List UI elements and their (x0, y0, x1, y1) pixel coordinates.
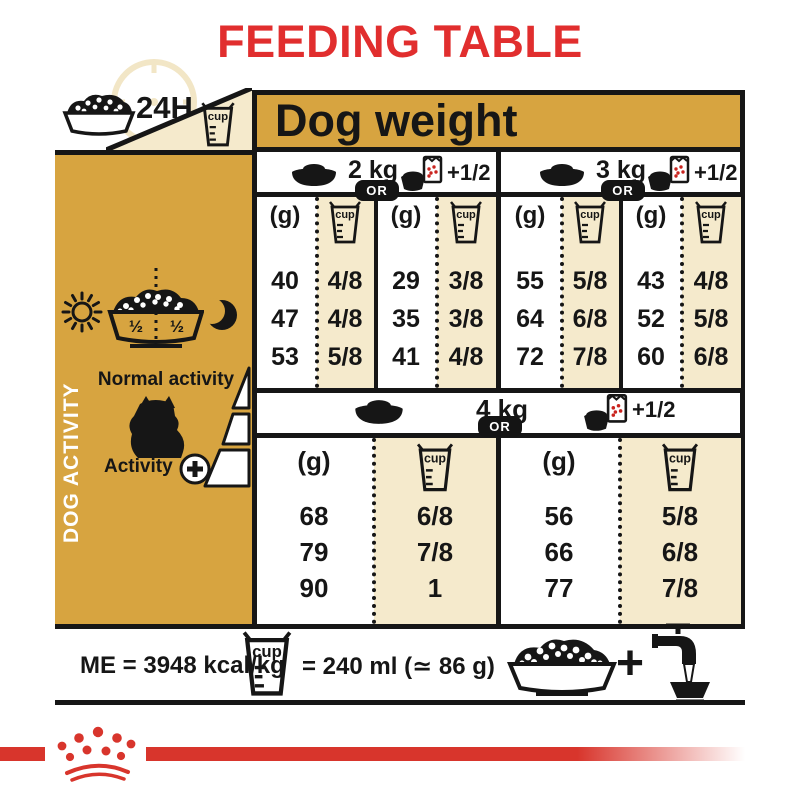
svg-text:½: ½ (170, 317, 184, 336)
table-cell: 4/8 (313, 267, 377, 296)
brand-bar-left (0, 747, 45, 761)
table-cell: 60 (619, 343, 683, 372)
dotted-divider (372, 438, 376, 624)
table-cell: 53 (253, 343, 317, 372)
weight-block-divider (496, 438, 501, 624)
grams-unit-label: (g) (253, 202, 317, 230)
or-badge: OR (601, 180, 645, 201)
sun-icon (58, 288, 106, 336)
moon-icon (204, 294, 240, 336)
svg-text:cup: cup (335, 209, 355, 221)
kibble-bowl-icon (502, 626, 622, 700)
brand-bar-right (146, 747, 745, 761)
measuring-cup-icon: cup (573, 199, 607, 245)
grams-unit-label: (g) (276, 446, 352, 477)
table-cell: 1 (397, 573, 473, 604)
pouch-and-bowl-icon (582, 392, 630, 432)
svg-text:cup: cup (701, 209, 721, 221)
table-cell: 7/8 (397, 537, 473, 568)
measuring-cup-icon: cup (194, 100, 242, 148)
svg-text:cup: cup (252, 642, 282, 661)
header-row-underline (252, 192, 745, 197)
dish-icon (538, 162, 586, 188)
grams-unit-label: (g) (521, 446, 597, 477)
plus-half-label: +1/2 (694, 160, 737, 186)
table-cell: 3/8 (434, 267, 498, 296)
table-cell: 56 (521, 501, 597, 532)
table-cell: 4/8 (679, 267, 743, 296)
measuring-cup-icon: cup (660, 441, 700, 493)
table-cell: 6/8 (558, 305, 622, 334)
table-cell: 5/8 (642, 501, 718, 532)
table-cell: 35 (374, 305, 438, 334)
svg-text:cup: cup (208, 111, 228, 123)
dish-icon (352, 398, 406, 426)
plus-circle-icon (178, 452, 212, 486)
measuring-cup-icon: cup (415, 441, 455, 493)
table-cell: 3/8 (434, 305, 498, 334)
table-cell: 7/8 (558, 343, 622, 372)
pouch-and-bowl-icon (646, 154, 692, 192)
table-bottom-border (55, 624, 745, 629)
plus-half-label: +1/2 (632, 397, 675, 423)
grams-unit-label: (g) (374, 202, 438, 230)
measuring-cup-icon: cup (694, 199, 728, 245)
table-cell: 68 (276, 501, 352, 532)
table-cell: 29 (374, 267, 438, 296)
table-cell: 5/8 (558, 267, 622, 296)
table-cell: 5/8 (313, 343, 377, 372)
svg-text:cup: cup (456, 209, 476, 221)
svg-text:cup: cup (669, 451, 691, 465)
table-cell: 7/8 (642, 573, 718, 604)
crown-logo (54, 726, 136, 784)
dog-activity-vertical-label: DOG ACTIVITY (60, 364, 90, 562)
half-half-bowl-icon: ½ ½ (100, 268, 212, 364)
table-cell: 5/8 (679, 305, 743, 334)
table-cell: 40 (253, 267, 317, 296)
svg-text:½: ½ (129, 317, 143, 336)
or-badge: OR (355, 180, 399, 201)
svg-text:cup: cup (580, 209, 600, 221)
measuring-cup-icon: cup (449, 199, 483, 245)
table-cell: 6/8 (642, 537, 718, 568)
table-cell: 4/8 (313, 305, 377, 334)
table-cell: 90 (276, 573, 352, 604)
table-cell: 72 (498, 343, 562, 372)
dog-silhouette-icon (116, 392, 194, 460)
table-cell: 55 (498, 267, 562, 296)
table-cell: 66 (521, 537, 597, 568)
svg-text:cup: cup (424, 451, 446, 465)
table-cell: 43 (619, 267, 683, 296)
footer-bottom-border (55, 700, 745, 705)
grams-unit-label: (g) (619, 202, 683, 230)
table-cell: 6/8 (679, 343, 743, 372)
cup-equivalence-label: = 240 ml (≃ 86 g) (302, 652, 495, 681)
table-cell: 52 (619, 305, 683, 334)
water-tap-icon (650, 622, 720, 702)
table-cell: 6/8 (397, 501, 473, 532)
dog-weight-header: Dog weight (252, 90, 745, 152)
plus-label: + (616, 636, 644, 691)
table-cell: 79 (276, 537, 352, 568)
section-divider (252, 388, 745, 393)
table-cell: 77 (521, 573, 597, 604)
pouch-and-bowl-icon (399, 154, 445, 192)
plus-half-label: +1/2 (447, 160, 490, 186)
feeding-table-page: FEEDING TABLE 24H cup Dog weight (0, 0, 800, 800)
dog-weight-label: Dog weight (275, 95, 517, 147)
measuring-cup-icon: cup (236, 628, 298, 698)
measuring-cup-icon: cup (328, 199, 362, 245)
table-cell: 47 (253, 305, 317, 334)
or-badge: OR (478, 416, 522, 437)
table-cell: 4/8 (434, 343, 498, 372)
grams-unit-label: (g) (498, 202, 562, 230)
sidebar-top-border (55, 150, 252, 155)
activity-label: Activity (104, 456, 173, 478)
dotted-divider (618, 438, 622, 624)
dish-icon (290, 162, 338, 188)
table-cell: 64 (498, 305, 562, 334)
table-cell: 41 (374, 343, 438, 372)
